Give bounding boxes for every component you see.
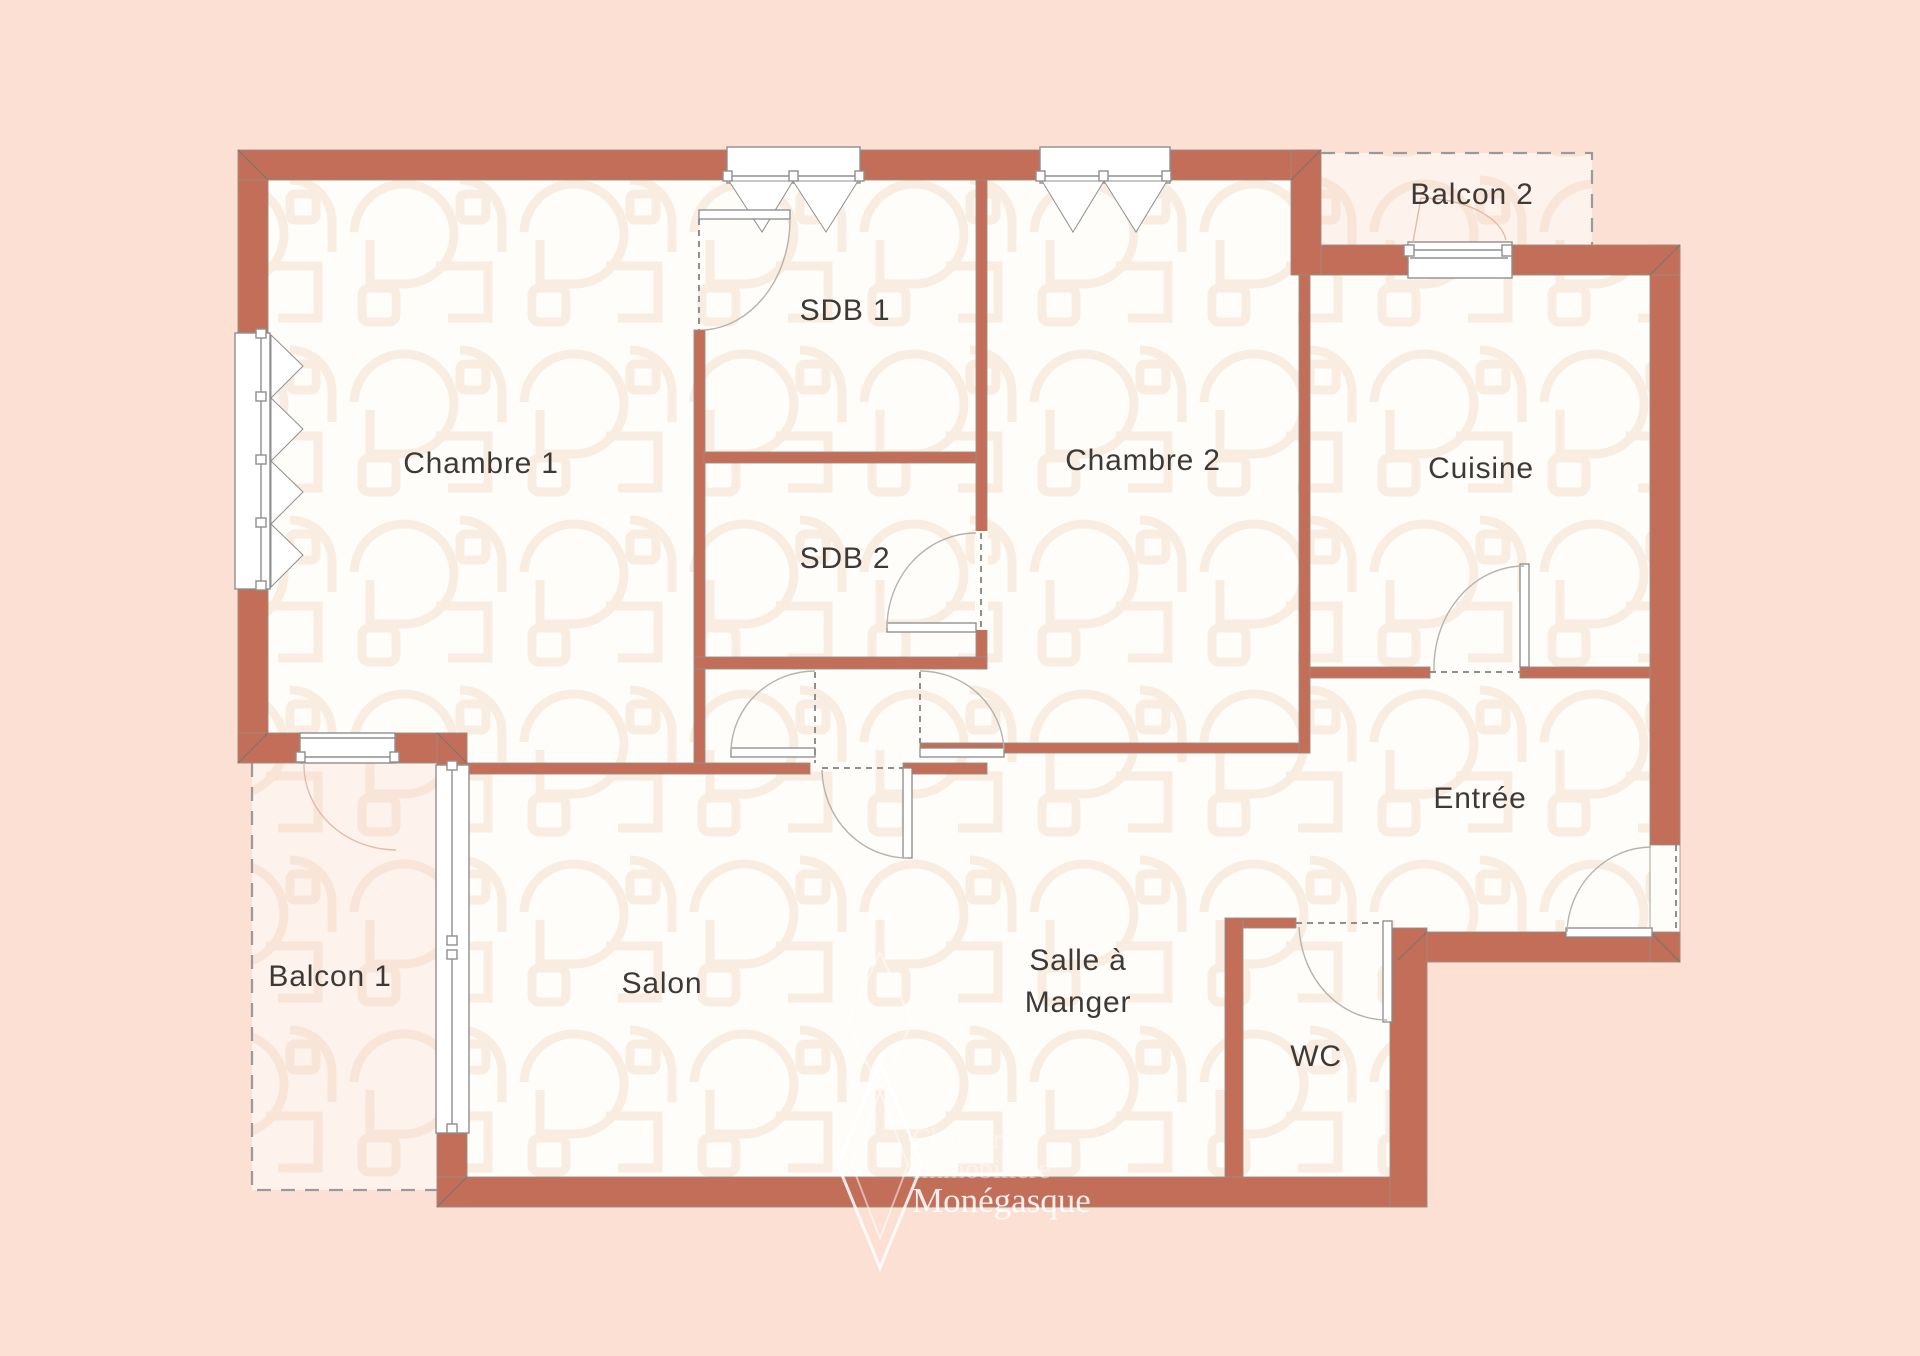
room-label-balcon2: Balcon 2 <box>1410 178 1533 211</box>
watermark-line-3: Monégasque <box>912 1181 1091 1220</box>
door-leaf-cuisine <box>1520 564 1529 667</box>
window-salon-icon <box>436 761 469 1133</box>
floor-plan-page: Chambre 1 SDB 1 SDB 2 Chambre 2 Cuisine … <box>0 0 1920 1356</box>
door-leaf-chambre2 <box>920 748 1004 757</box>
room-label-salle-a-manger-1: Salle à <box>1029 944 1126 977</box>
room-label-salon: Salon <box>622 967 703 1000</box>
door-leaf-entrance <box>1566 928 1652 937</box>
room-label-balcon1: Balcon 1 <box>268 960 391 993</box>
watermark-line-1: Chambre <box>912 1124 1015 1155</box>
door-leaf-wc <box>1383 921 1392 1022</box>
door-leaf-sdb1 <box>699 210 790 219</box>
room-label-sdb2: SDB 2 <box>800 542 891 575</box>
door-leaf-closet <box>731 748 815 757</box>
room-label-entree: Entrée <box>1433 782 1526 815</box>
room-label-salle-a-manger-2: Manger <box>1025 986 1132 1019</box>
floor-plan-svg: Chambre 1 SDB 1 SDB 2 Chambre 2 Cuisine … <box>0 0 1920 1356</box>
room-label-cuisine: Cuisine <box>1428 452 1534 485</box>
room-label-chambre1: Chambre 1 <box>403 447 559 480</box>
door-leaf-salon <box>903 768 912 858</box>
door-leaf-sdb2 <box>887 623 976 632</box>
room-label-sdb1: SDB 1 <box>800 294 891 327</box>
room-label-wc: WC <box>1290 1040 1342 1073</box>
room-label-chambre2: Chambre 2 <box>1065 444 1221 477</box>
